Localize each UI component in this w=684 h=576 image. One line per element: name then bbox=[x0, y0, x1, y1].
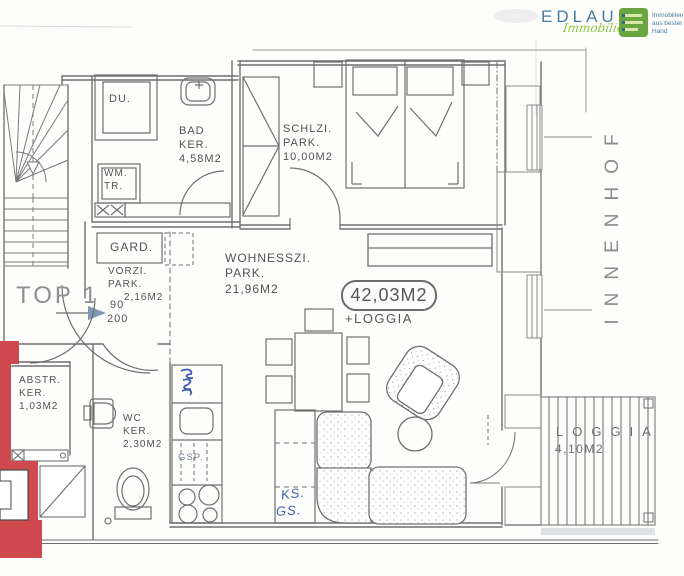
loggia-drawing bbox=[470, 397, 655, 535]
label-line: KER. bbox=[19, 388, 61, 401]
kitchen-sink bbox=[180, 408, 213, 434]
stove-burner bbox=[179, 489, 195, 505]
dimension-leader bbox=[544, 137, 592, 310]
loggia-area-label: 4,10M2 bbox=[555, 442, 604, 457]
label-line: WM. bbox=[104, 168, 128, 181]
fridge-label: KS. bbox=[280, 485, 306, 504]
label-line: 10,00M2 bbox=[283, 150, 333, 164]
entry-door-size: 90 200 bbox=[110, 298, 128, 326]
room-label-bedroom: SCHLZI. PARK. 10,00M2 bbox=[283, 122, 333, 164]
pillow bbox=[407, 67, 453, 95]
door-height: 200 bbox=[107, 312, 128, 326]
logo-tagline: Immobilien aus bester Hand bbox=[652, 12, 683, 36]
sideboard bbox=[368, 234, 492, 266]
courtyard-label: INNENHOF bbox=[602, 90, 628, 356]
logo-lines-icon bbox=[619, 8, 648, 37]
agency-logo: EDLAUER Immobilien Immobilien aus bester… bbox=[533, 6, 683, 46]
chair bbox=[266, 376, 292, 403]
label-line: VORZI. bbox=[108, 266, 163, 279]
dishwasher-label: GSP. bbox=[178, 452, 203, 464]
stove-burner bbox=[199, 485, 219, 505]
shower-tray bbox=[95, 75, 157, 140]
room-label-bath: BAD KER. 4,58M2 bbox=[179, 124, 222, 166]
lounge-furniture bbox=[317, 234, 492, 524]
unit-label: TOP 1 bbox=[16, 281, 99, 312]
dining-table bbox=[295, 333, 342, 411]
loggia-door-swing bbox=[470, 432, 515, 483]
room-label-living: WOHNESSZI. PARK. 21,96M2 bbox=[225, 251, 311, 297]
freezer-label: GS. bbox=[275, 502, 302, 520]
label-line: ABSTR. bbox=[19, 375, 61, 388]
label-line: BAD bbox=[179, 124, 222, 138]
total-area-suffix: +LOGGIA bbox=[345, 311, 413, 326]
label-line: 1,03M2 bbox=[19, 401, 61, 414]
floorplan-page: DU. BAD KER. 4,58M2 WM. TR. SCHLZI. PARK… bbox=[0, 0, 684, 576]
tagline-line: Immobilien bbox=[652, 12, 683, 20]
label-line: 21,96M2 bbox=[225, 282, 311, 297]
label-line: KER. bbox=[123, 426, 162, 439]
label-line: 2,30M2 bbox=[123, 439, 162, 452]
room-label-laundry: WM. TR. bbox=[104, 168, 128, 194]
stove-burner bbox=[203, 508, 217, 522]
armchair bbox=[381, 341, 465, 426]
nightstand bbox=[314, 62, 342, 87]
stove-burner bbox=[179, 505, 197, 523]
tagline-line: aus bester bbox=[652, 20, 683, 28]
room-label-loggia: LOGGIA bbox=[556, 424, 660, 441]
label-line: KER. bbox=[179, 138, 222, 152]
label-line: TR. bbox=[104, 181, 128, 194]
staircase-drawing bbox=[4, 85, 68, 266]
round-rug bbox=[398, 417, 432, 451]
bath-door-swing bbox=[180, 171, 224, 215]
room-label-wc: WC KER. 2,30M2 bbox=[123, 413, 162, 451]
scan-artifacts bbox=[0, 9, 538, 115]
chair bbox=[347, 337, 369, 364]
chair bbox=[347, 374, 369, 402]
courtyard-windows bbox=[497, 86, 592, 525]
wc-door-swing bbox=[103, 344, 158, 370]
window-symbol bbox=[527, 275, 542, 338]
pillow bbox=[353, 67, 397, 95]
sofa-corner-section bbox=[317, 468, 371, 523]
label-line: PARK. bbox=[108, 279, 163, 292]
sofa-back-section bbox=[317, 412, 371, 470]
room-label-storage: ABSTR. KER. 1,03M2 bbox=[19, 375, 61, 413]
chair bbox=[266, 339, 292, 365]
room-label-shower: DU. bbox=[109, 92, 131, 106]
label-line: SCHLZI. bbox=[283, 122, 333, 136]
label-line: PARK. bbox=[225, 266, 311, 281]
label-line: 4,58M2 bbox=[179, 152, 222, 166]
label-line: 2,16M2 bbox=[124, 292, 163, 305]
blue-scribble bbox=[181, 370, 193, 395]
label-line: WOHNESSZI. bbox=[225, 251, 311, 266]
bedroom-furniture bbox=[243, 60, 489, 229]
label-line: WC bbox=[123, 413, 162, 426]
tagline-line: Hand bbox=[652, 28, 683, 36]
total-area-badge: 42,03M2 bbox=[341, 280, 437, 311]
door-width: 90 bbox=[110, 298, 128, 312]
room-label-wardrobe: GARD. bbox=[110, 240, 153, 255]
chair bbox=[305, 309, 333, 331]
bedroom-door-swing bbox=[290, 168, 340, 229]
sofa-long-section bbox=[369, 467, 466, 524]
label-line: PARK. bbox=[283, 136, 333, 150]
